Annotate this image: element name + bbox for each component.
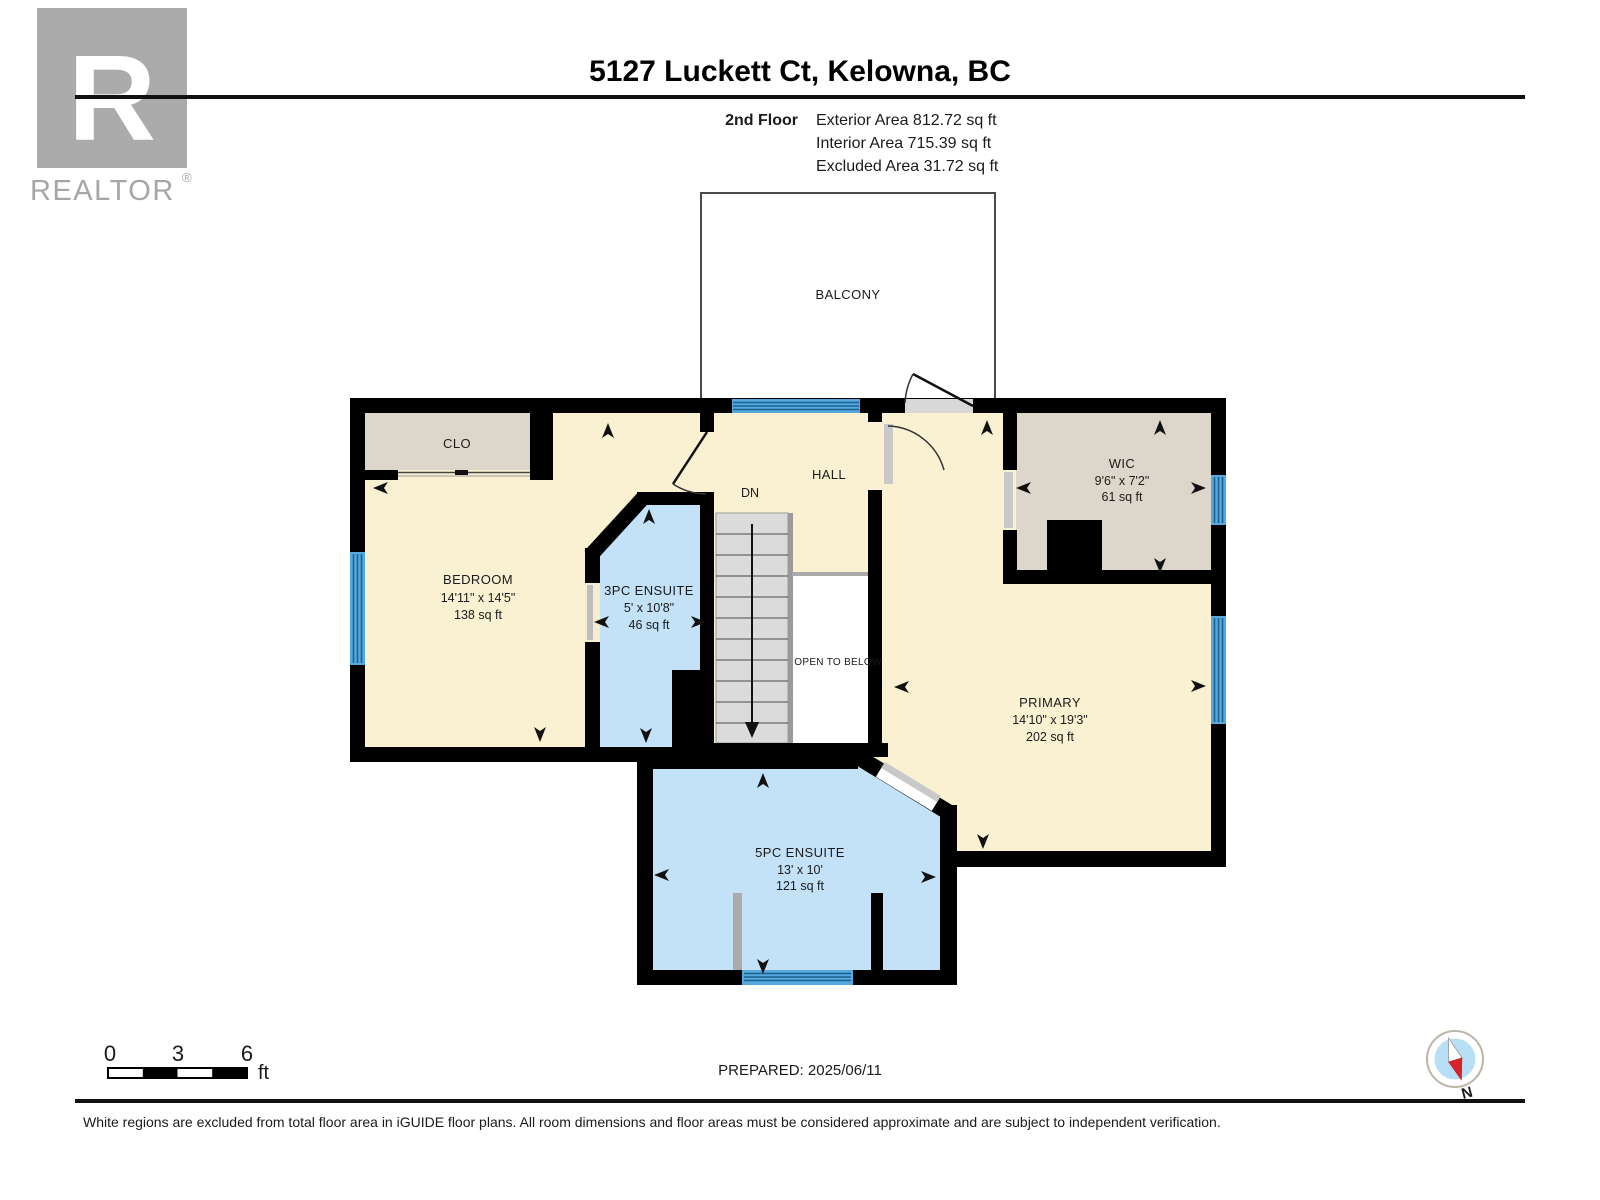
label-3pc-area: 46 sq ft — [629, 618, 671, 632]
label-5pc: 5PC ENSUITE — [755, 845, 845, 860]
floorplan-page: R REALTOR ® 5127 Luckett Ct, Kelowna, BC… — [0, 0, 1600, 1200]
wall-3pc-left-b — [585, 642, 600, 747]
label-primary: PRIMARY — [1019, 695, 1081, 710]
scale-bar: 0 3 6 ft — [104, 1041, 270, 1084]
label-primary-area: 202 sq ft — [1026, 730, 1074, 744]
prepared-date: PREPARED: 2025/06/11 — [718, 1062, 882, 1079]
window-wic-east — [1211, 475, 1226, 525]
interior-area: Interior Area 715.39 sq ft — [816, 135, 992, 152]
label-dn: DN — [741, 486, 759, 500]
header: 5127 Luckett Ct, Kelowna, BC 2nd Floor E… — [75, 55, 1525, 175]
door-wic — [1004, 472, 1013, 528]
label-balcony: BALCONY — [816, 287, 881, 302]
door-5pc-partition-slab — [733, 893, 742, 970]
label-bedroom-dims: 14'11" x 14'5" — [441, 591, 516, 605]
floor-label: 2nd Floor — [725, 112, 798, 129]
label-5pc-dims: 13' x 10' — [777, 863, 823, 877]
window-hall-north — [732, 399, 860, 413]
label-wic-dims: 9'6" x 7'2" — [1095, 474, 1150, 488]
wall-wic-left-a — [1003, 413, 1017, 470]
scale-0: 0 — [104, 1041, 116, 1066]
wall-5pc-partition — [871, 893, 883, 970]
label-clo: CLO — [443, 436, 471, 451]
label-bedroom: BEDROOM — [443, 572, 513, 587]
compass-icon: N — [1427, 1031, 1483, 1103]
wall-3pc-left-a — [585, 548, 600, 583]
wall-clo-bottom-chunk — [365, 470, 398, 480]
realtor-logo: R REALTOR ® — [30, 8, 192, 207]
scale-bar-seg2 — [143, 1068, 178, 1078]
excluded-area: Excluded Area 31.72 sq ft — [816, 158, 999, 175]
wall-5pc-left — [637, 747, 653, 985]
open-to-below-edge — [792, 572, 868, 576]
scale-unit: ft — [258, 1062, 270, 1084]
wall-3pc-block — [672, 670, 714, 747]
label-primary-dims: 14'10" x 19'3" — [1012, 713, 1088, 727]
page-title: 5127 Luckett Ct, Kelowna, BC — [589, 55, 1011, 88]
label-hall: HALL — [812, 467, 846, 482]
exterior-area: Exterior Area 812.72 sq ft — [816, 112, 997, 129]
wall-5pc-top — [653, 755, 858, 769]
wall-primary-bottom — [940, 851, 1226, 867]
header-rule — [75, 95, 1525, 99]
label-wic-area: 61 sq ft — [1102, 490, 1144, 504]
window-primary-east — [1211, 616, 1226, 724]
stair-handrail — [788, 513, 793, 743]
wall-wic-bottom — [1003, 570, 1226, 584]
window-5pc-south — [742, 970, 853, 985]
wall-wic-block — [1047, 520, 1102, 584]
wall-clo-right — [530, 413, 553, 480]
window-bedroom-west — [350, 552, 365, 665]
registered-mark-icon: ® — [182, 170, 192, 185]
wall-hall-primary-b — [868, 490, 882, 757]
label-3pc: 3PC ENSUITE — [604, 583, 694, 598]
label-open-to-below: OPEN TO BELOW — [794, 657, 882, 668]
scale-3: 3 — [172, 1041, 184, 1066]
wall-hall-bedroom-a — [700, 413, 714, 432]
scale-bar-seg4 — [212, 1068, 247, 1078]
scale-6: 6 — [241, 1041, 253, 1066]
door-3pc-ensuite — [585, 583, 600, 642]
wall-wic-left-b — [1003, 530, 1017, 572]
label-wic: WIC — [1109, 456, 1135, 471]
label-3pc-dims: 5' x 10'8" — [624, 601, 674, 615]
disclaimer-text: White regions are excluded from total fl… — [83, 1114, 1221, 1130]
footer-rule — [75, 1099, 1525, 1103]
realtor-logo-text: REALTOR — [30, 175, 175, 207]
label-bedroom-area: 138 sq ft — [454, 608, 502, 622]
floor-plan: BALCONY CLO BEDROOM 14'11" x 14'5" 138 s… — [350, 193, 1226, 985]
label-5pc-area: 121 sq ft — [776, 879, 824, 893]
wall-hall-primary-a — [868, 413, 882, 422]
floorplan-canvas: R REALTOR ® 5127 Luckett Ct, Kelowna, BC… — [0, 0, 1600, 1200]
wall-5pc-east — [940, 805, 957, 985]
clo-slider-tick — [455, 470, 468, 475]
